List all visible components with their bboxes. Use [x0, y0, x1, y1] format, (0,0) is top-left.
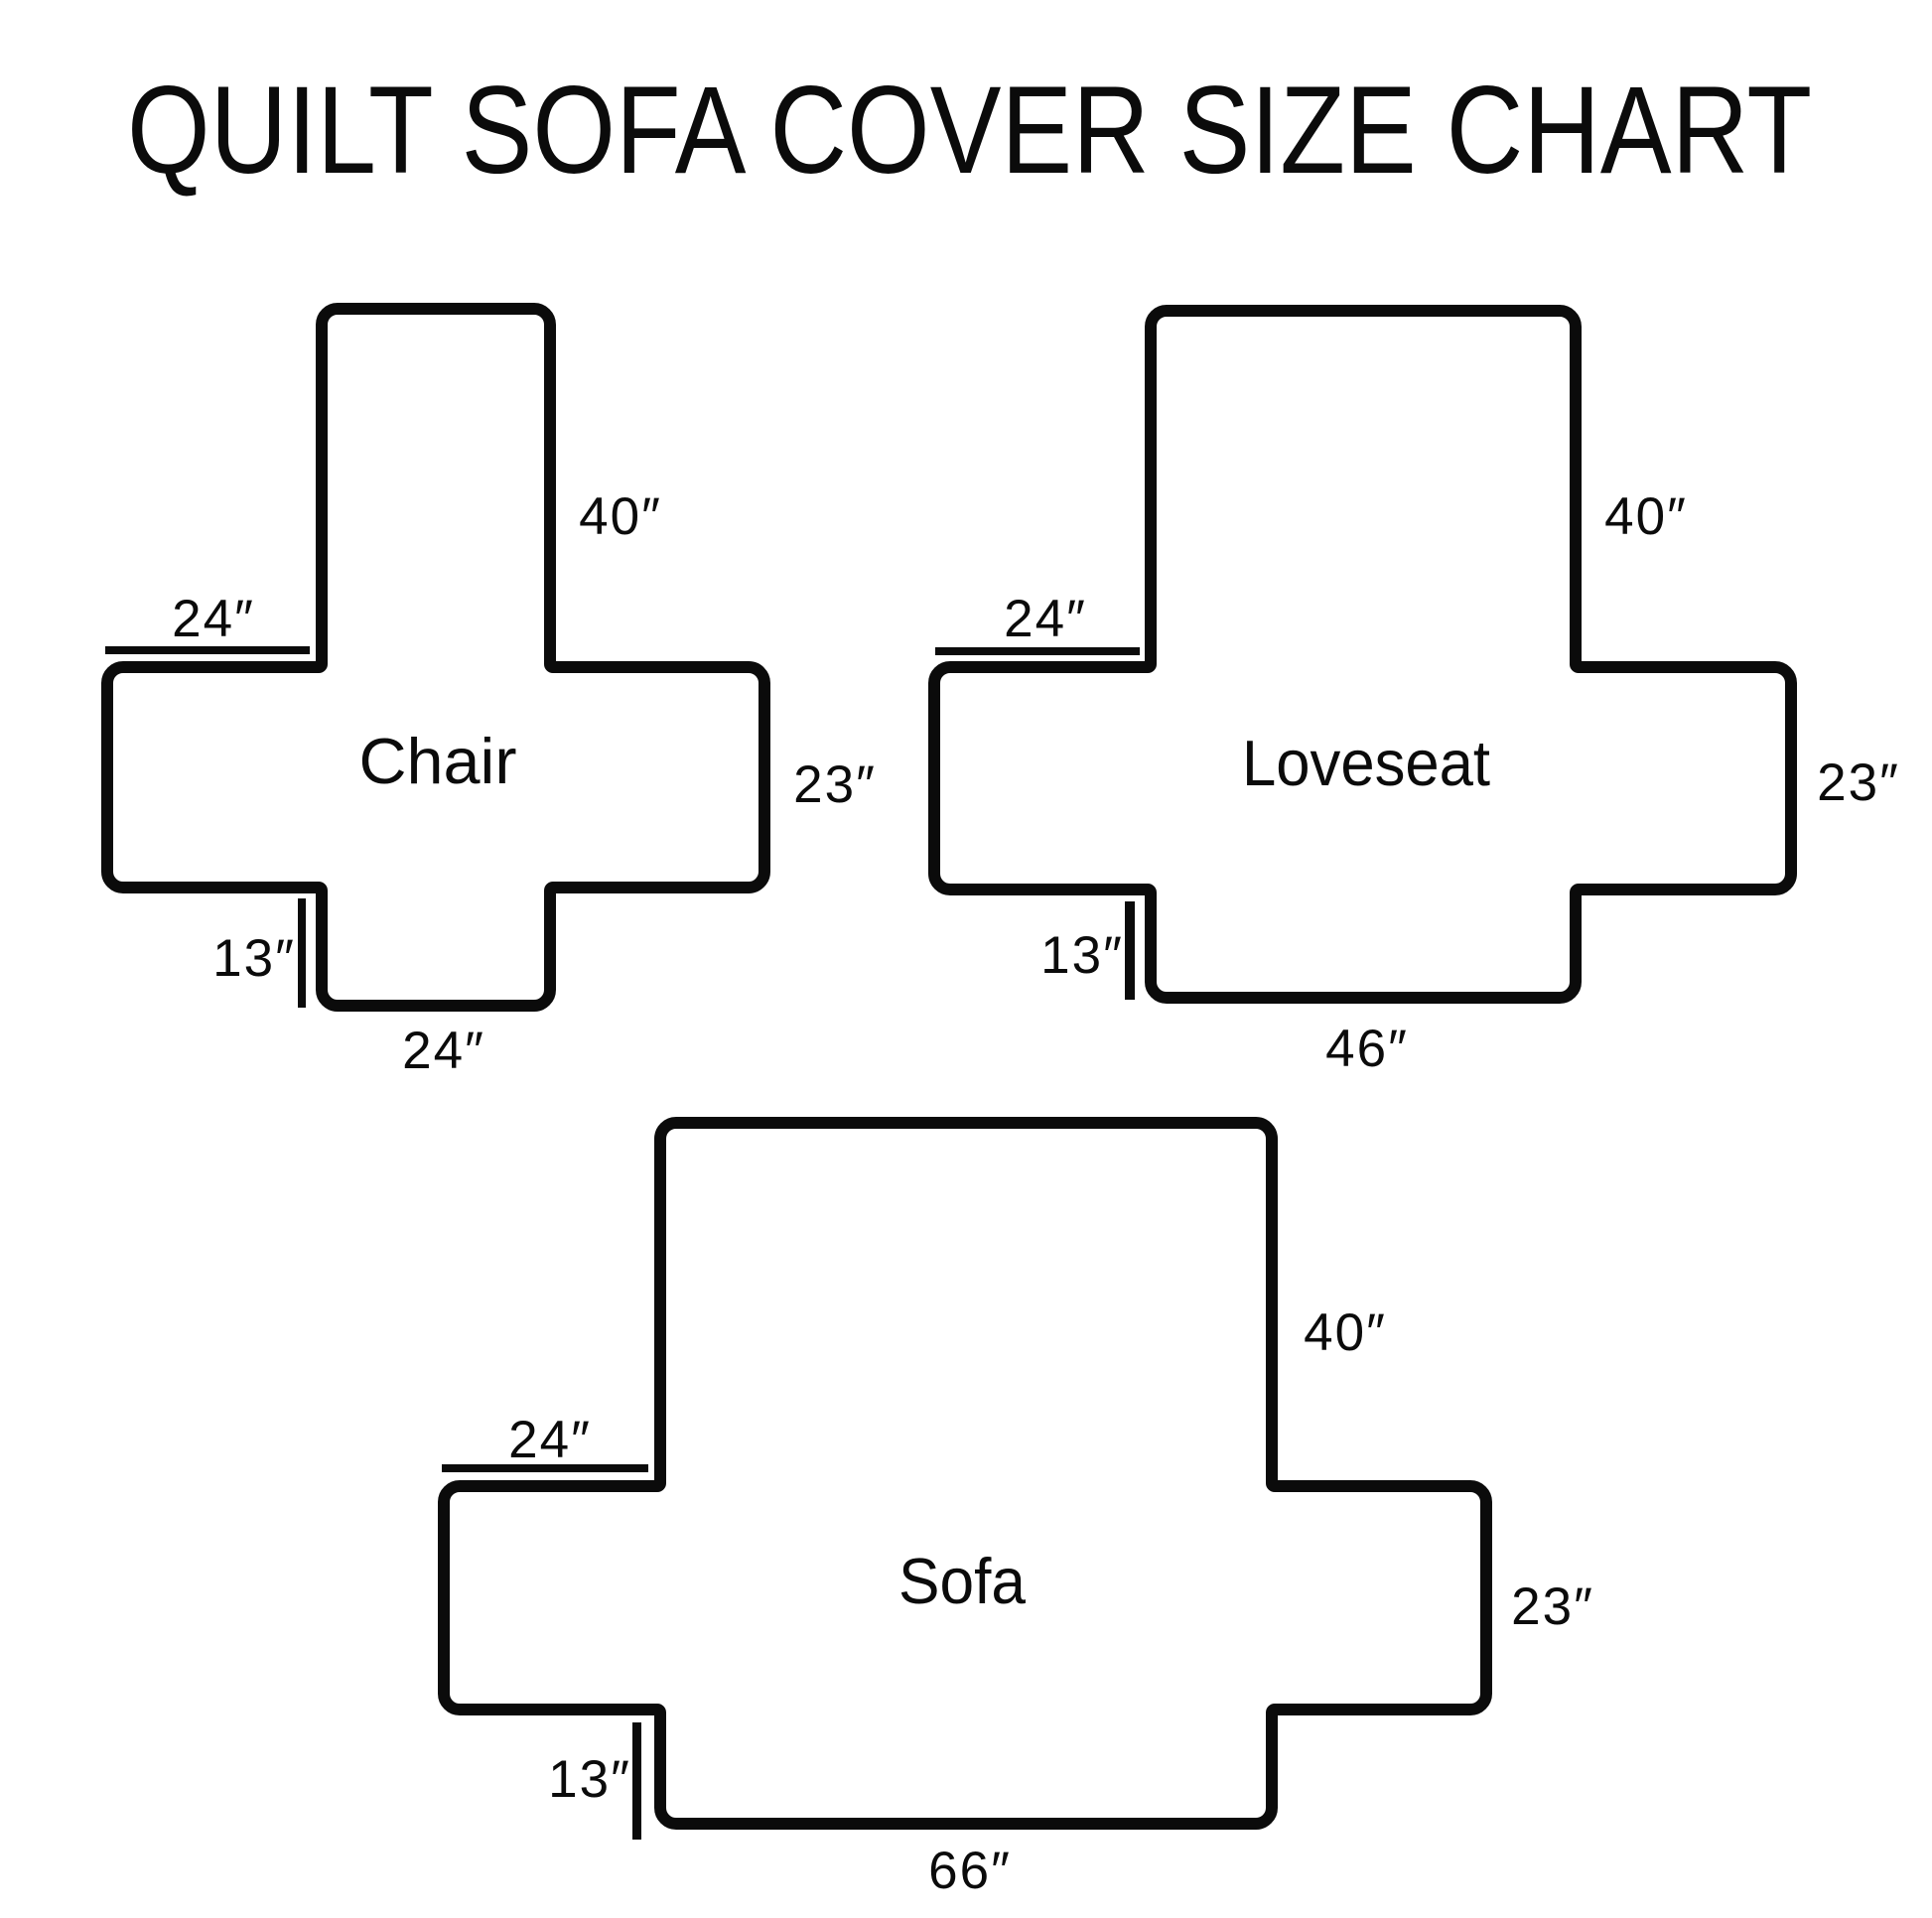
svg-text:23″: 23″: [1817, 753, 1900, 812]
svg-text:66″: 66″: [928, 1842, 1012, 1900]
svg-text:13″: 13″: [1040, 926, 1124, 985]
svg-text:23″: 23″: [1511, 1577, 1594, 1636]
svg-text:Sofa: Sofa: [898, 1545, 1027, 1617]
svg-text:Chair: Chair: [359, 725, 517, 797]
svg-text:13″: 13″: [548, 1750, 631, 1809]
svg-text:24″: 24″: [1004, 590, 1087, 648]
svg-text:23″: 23″: [793, 755, 877, 814]
svg-text:40″: 40″: [579, 487, 662, 546]
svg-text:24″: 24″: [508, 1411, 592, 1469]
svg-text:40″: 40″: [1604, 487, 1688, 546]
svg-text:40″: 40″: [1304, 1303, 1387, 1362]
svg-text:24″: 24″: [172, 590, 255, 648]
svg-text:46″: 46″: [1325, 1020, 1409, 1078]
svg-text:QUILT SOFA COVER SIZE CHART: QUILT SOFA COVER SIZE CHART: [127, 62, 1812, 200]
svg-text:13″: 13″: [212, 929, 296, 988]
svg-text:Loveseat: Loveseat: [1242, 727, 1490, 799]
svg-text:24″: 24″: [402, 1022, 485, 1080]
